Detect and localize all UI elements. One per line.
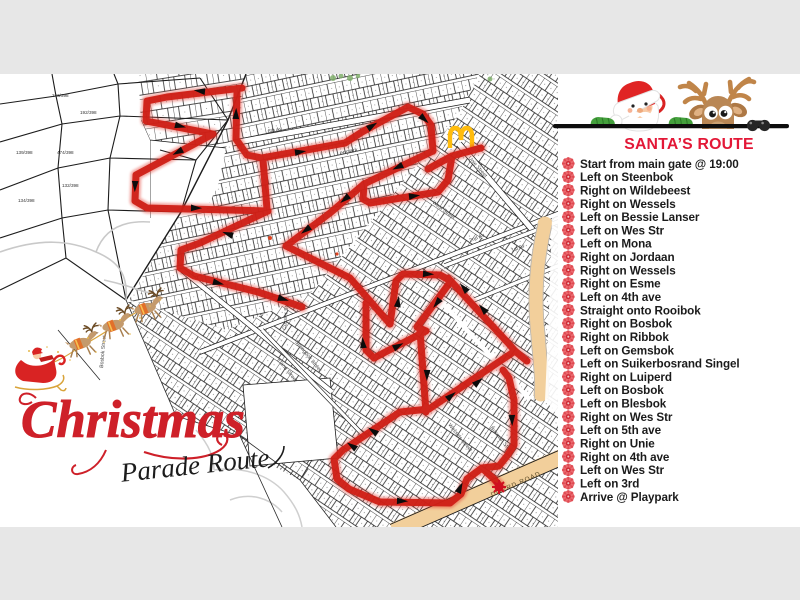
svg-text:Left on Suikerbosrand Singel: Left on Suikerbosrand Singel [580, 358, 740, 371]
svg-text:Left on Wes Str: Left on Wes Str [580, 224, 665, 237]
svg-text:Right on Luiperd: Right on Luiperd [580, 371, 672, 384]
svg-text:132/398: 132/398 [62, 183, 79, 188]
svg-text:Left on Mona: Left on Mona [580, 238, 652, 251]
svg-text:Start from main gate @ 19:00: Start from main gate @ 19:00 [580, 158, 739, 171]
svg-text:192/398: 192/398 [80, 110, 97, 115]
svg-text:Left on Wes Str: Left on Wes Str [580, 464, 665, 477]
svg-text:Right on Wessels: Right on Wessels [580, 198, 676, 211]
svg-text:Right on Bosbok: Right on Bosbok [580, 318, 673, 331]
svg-text:Arrive @ Playpark: Arrive @ Playpark [580, 491, 679, 504]
svg-text:134/398: 134/398 [18, 198, 35, 203]
svg-text:Right on 4th ave: Right on 4th ave [580, 451, 670, 464]
svg-text:474/398: 474/398 [57, 150, 74, 155]
svg-text:Right on Wildebeest: Right on Wildebeest [580, 184, 691, 197]
svg-text:Left on 5th ave: Left on 5th ave [580, 424, 662, 437]
svg-text:Right on Wes Str: Right on Wes Str [580, 411, 673, 424]
svg-text:Left on Bessie Lanser: Left on Bessie Lanser [580, 211, 700, 224]
svg-text:Left on 3rd: Left on 3rd [580, 478, 639, 491]
svg-text:Right on Jordaan: Right on Jordaan [580, 251, 675, 264]
svg-text:Left on Gemsbok: Left on Gemsbok [580, 344, 675, 357]
svg-text:Left on Bosbok: Left on Bosbok [580, 384, 664, 397]
svg-text:Right on Ribbok: Right on Ribbok [580, 331, 669, 344]
svg-text:Right on Unie: Right on Unie [580, 438, 655, 451]
svg-text:Christmas: Christmas [21, 391, 245, 449]
svg-text:Left on 4th ave: Left on 4th ave [580, 291, 662, 304]
svg-text:Straight onto Rooibok: Straight onto Rooibok [580, 304, 701, 317]
svg-text:Left on Blesbok: Left on Blesbok [580, 398, 667, 411]
svg-text:139/398: 139/398 [16, 150, 33, 155]
svg-text:246/398: 246/398 [52, 93, 69, 98]
svg-text:Right on Esme: Right on Esme [580, 278, 661, 291]
svg-text:Left on Steenbok: Left on Steenbok [580, 171, 674, 184]
svg-text:Right on Wessels: Right on Wessels [580, 264, 676, 277]
svg-text:SANTA’S ROUTE: SANTA’S ROUTE [624, 136, 754, 153]
